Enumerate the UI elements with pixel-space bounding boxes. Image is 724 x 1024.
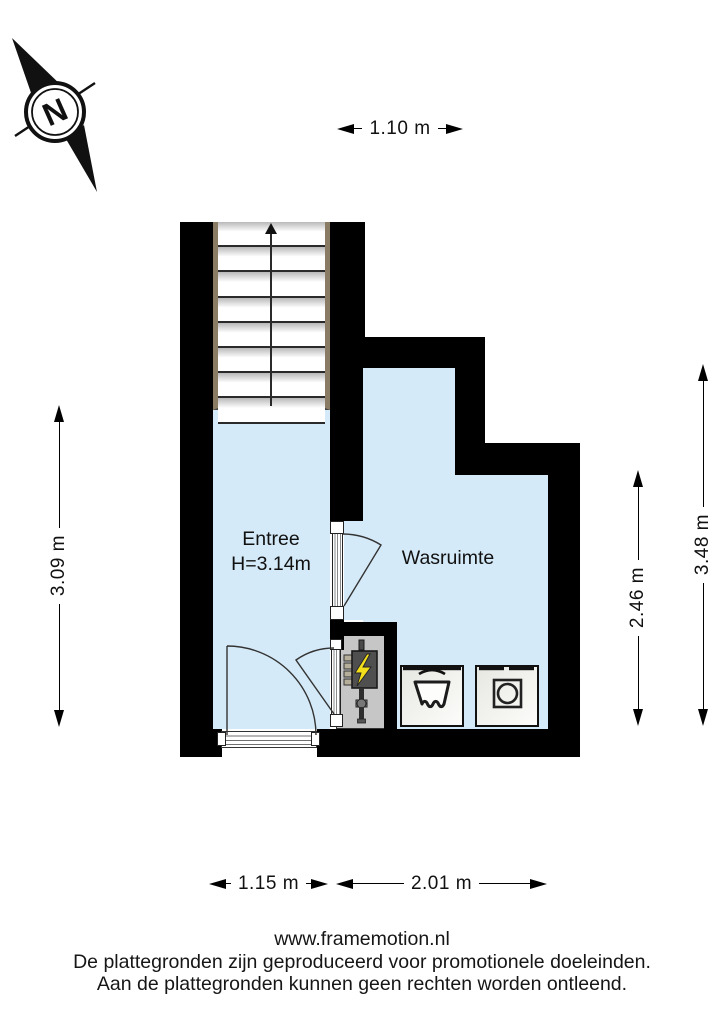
wall-interior-upper: [330, 368, 363, 521]
arrow-down-icon: [698, 709, 708, 726]
stairs: [213, 222, 330, 410]
wasruimte-name: Wasruimte: [373, 546, 523, 571]
room-label-entree: Entree H=3.14m: [205, 527, 337, 577]
dimension-label: 2.01 m: [404, 873, 479, 895]
dimension-label: 3.09 m: [48, 528, 70, 603]
wall-left: [180, 222, 213, 757]
door-jamb: [217, 732, 226, 746]
dimension-wasruimte-width: 2.01 m: [336, 873, 547, 894]
stairs-up-arrow-icon: [265, 223, 277, 234]
arrow-up-icon: [633, 470, 643, 487]
wall-bottom-left: [180, 729, 222, 757]
dimension-label: 3.48 m: [692, 507, 714, 582]
washing-machine-icon: [477, 667, 537, 725]
arrow-down-icon: [54, 710, 64, 727]
dimension-wasruimte-height: 2.46 m: [627, 470, 649, 726]
floorplan-page: N: [0, 0, 724, 1024]
arrow-down-icon: [633, 709, 643, 726]
footer-disclaimer-2: Aan de plattegronden kunnen geen rechten…: [0, 973, 724, 996]
arrow-up-icon: [54, 405, 64, 422]
footer-disclaimer-1: De plattegronden zijn geproduceerd voor …: [0, 951, 724, 974]
stairs-direction-line: [270, 232, 272, 406]
wall-bottom-right: [317, 729, 580, 757]
dimension-entree-width: 1.15 m: [209, 873, 328, 894]
door-jamb: [330, 606, 344, 620]
sink-icon: [402, 667, 462, 725]
dimension-label: 1.15 m: [231, 873, 306, 895]
dimension-stairs-width: 1.10 m: [337, 118, 463, 139]
arrow-up-icon: [698, 364, 708, 381]
wall-meterkast-right: [384, 622, 397, 729]
arrow-right-icon: [530, 879, 547, 889]
wall-right-lower: [548, 443, 580, 757]
arrow-right-icon: [311, 879, 328, 889]
footer: www.framemotion.nl De plattegronden zijn…: [0, 928, 724, 996]
front-door-threshold: [221, 731, 317, 748]
washing-machine: [475, 665, 539, 727]
meterkast-door-leaf: [331, 649, 341, 715]
arrow-left-icon: [337, 124, 354, 134]
room-label-wasruimte: Wasruimte: [373, 546, 523, 571]
arrow-left-icon: [336, 879, 353, 889]
arrow-right-icon: [446, 124, 463, 134]
door-jamb: [330, 714, 343, 727]
dimension-total-height: 3.48 m: [692, 364, 714, 726]
arrow-left-icon: [209, 879, 226, 889]
room-doorway-floor-strip: [344, 521, 363, 620]
door-jamb: [311, 732, 320, 746]
entree-name: Entree: [205, 527, 337, 552]
entree-ceiling-height: H=3.14m: [205, 552, 337, 577]
footer-website: www.framemotion.nl: [0, 928, 724, 951]
dimension-label: 2.46 m: [627, 560, 649, 635]
compass-north-icon: N: [5, 22, 105, 200]
electrical-meter-icon: [343, 639, 383, 727]
laundry-sink: [400, 665, 464, 727]
dimension-label: 1.10 m: [362, 118, 437, 140]
dimension-entree-height: 3.09 m: [48, 405, 70, 727]
